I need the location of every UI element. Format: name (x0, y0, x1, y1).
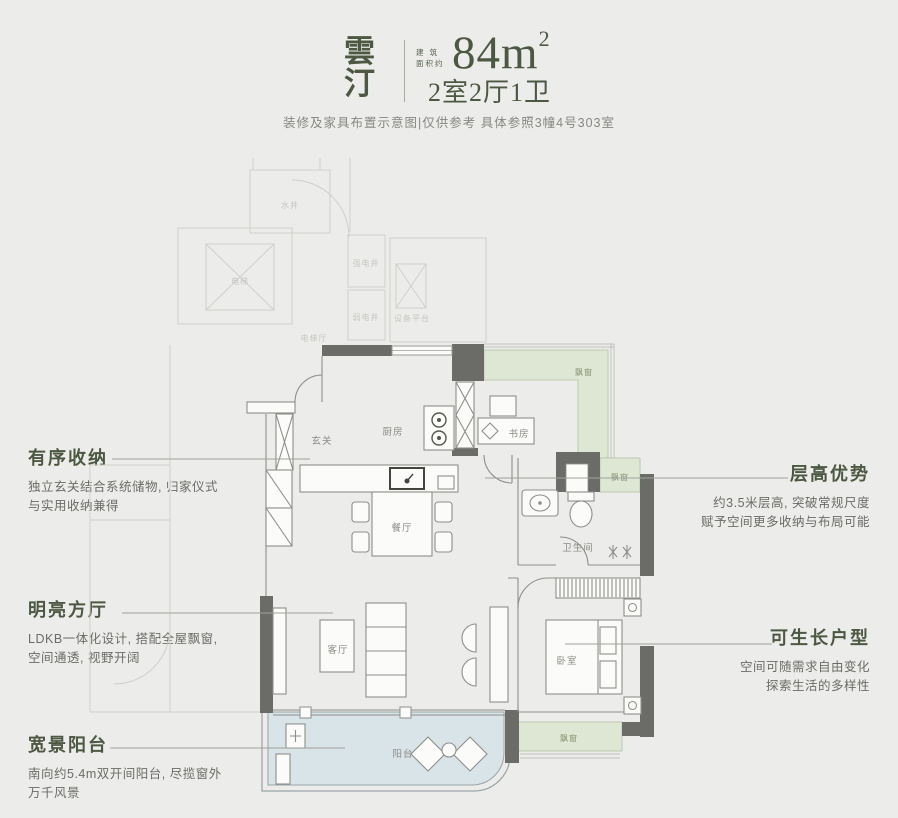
label-elevator: 电梯 (231, 276, 249, 286)
label-dining: 餐厅 (391, 522, 412, 534)
label-bay-window-top: 飘窗 (575, 367, 593, 377)
balcony-area: 阳台 (262, 707, 510, 791)
floorplan-page: 雲汀 建 筑 面积约 84m2 2室2厅1卫 装修及家具布置示意图|仅供参考 具… (0, 0, 898, 818)
floorplan-drawing: 水井 电梯 强电井 弱电井 设备平台 电梯厅 飘窗 飘窗 飘窗 (0, 0, 898, 818)
label-weak-elec: 弱电井 (353, 312, 380, 322)
label-bay-window-right: 飘窗 (611, 472, 629, 482)
label-kitchen: 厨房 (382, 426, 403, 438)
label-elevator-hall: 电梯厅 (301, 333, 328, 343)
label-water-shaft: 水井 (281, 200, 299, 210)
label-equipment-platform: 设备平台 (394, 313, 430, 323)
label-bedroom: 卧室 (556, 655, 577, 667)
label-balcony: 阳台 (392, 748, 413, 760)
label-bay-window-bottom: 飘窗 (560, 733, 578, 743)
label-bathroom: 卫生间 (562, 542, 594, 554)
label-strong-elec: 强电井 (353, 258, 380, 268)
label-entry: 玄关 (311, 435, 332, 447)
label-study: 书房 (508, 428, 529, 440)
label-living: 客厅 (327, 644, 348, 656)
kitchen-window (392, 346, 452, 355)
